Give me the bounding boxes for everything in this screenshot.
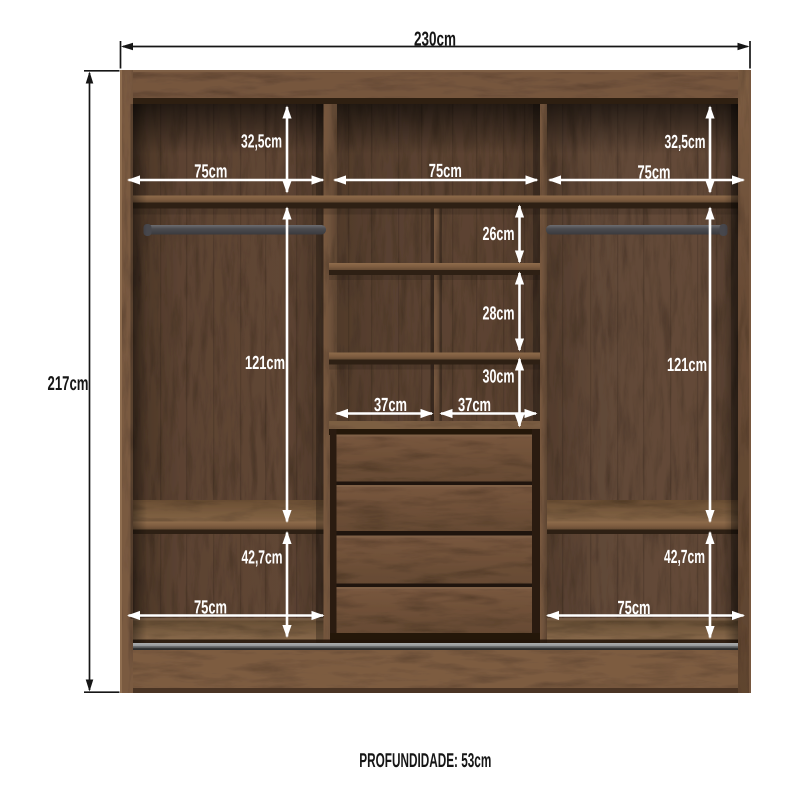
svg-text:121cm: 121cm — [245, 353, 285, 374]
svg-text:37cm: 37cm — [458, 395, 491, 416]
svg-text:28cm: 28cm — [483, 304, 515, 325]
svg-text:37cm: 37cm — [374, 395, 407, 416]
svg-text:75cm: 75cm — [638, 163, 671, 184]
svg-text:32,5cm: 32,5cm — [665, 132, 706, 153]
svg-text:30cm: 30cm — [483, 367, 515, 388]
svg-text:75cm: 75cm — [194, 598, 227, 619]
svg-text:121cm: 121cm — [667, 355, 707, 376]
svg-text:217cm: 217cm — [48, 373, 89, 395]
svg-text:26cm: 26cm — [483, 224, 515, 245]
svg-text:75cm: 75cm — [194, 162, 227, 183]
svg-text:75cm: 75cm — [429, 161, 462, 182]
svg-text:PROFUNDIDADE: 53cm: PROFUNDIDADE: 53cm — [359, 750, 491, 772]
svg-text:230cm: 230cm — [414, 29, 456, 51]
svg-text:32,5cm: 32,5cm — [241, 131, 282, 152]
svg-text:42,7cm: 42,7cm — [664, 547, 705, 568]
svg-text:75cm: 75cm — [618, 598, 651, 619]
svg-text:42,7cm: 42,7cm — [242, 548, 283, 569]
